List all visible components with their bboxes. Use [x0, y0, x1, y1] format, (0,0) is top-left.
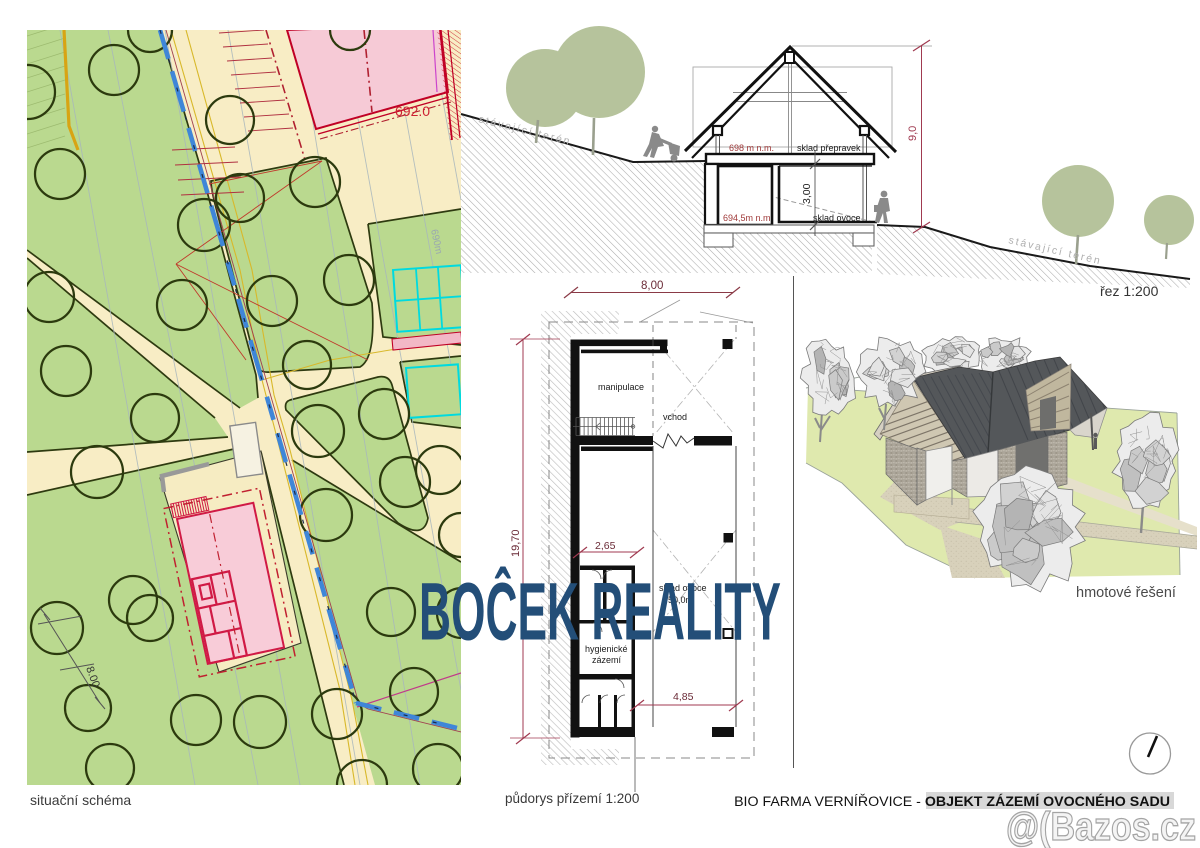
svg-text:BOĈEK REALITY: BOĈEK REALITY — [419, 566, 781, 657]
svg-text:692.0: 692.0 — [395, 103, 430, 119]
svg-text:3,00: 3,00 — [801, 183, 813, 204]
svg-text:řez 1:200: řez 1:200 — [1100, 283, 1159, 299]
svg-text:19,70: 19,70 — [510, 529, 522, 557]
svg-text:694,5m n.m: 694,5m n.m — [723, 213, 771, 223]
svg-text:8,00: 8,00 — [641, 280, 663, 292]
svg-text:situační schéma: situační schéma — [30, 792, 131, 808]
svg-text:4,85: 4,85 — [673, 691, 694, 703]
svg-text:sklad ovoce: sklad ovoce — [813, 213, 861, 223]
svg-text:698 m n.m.: 698 m n.m. — [729, 143, 774, 153]
svg-text:půdorys přízemí 1:200: půdorys přízemí 1:200 — [505, 791, 639, 806]
svg-text:2,65: 2,65 — [595, 540, 616, 552]
svg-text:vchod: vchod — [663, 412, 687, 422]
svg-text:9,0: 9,0 — [907, 126, 919, 141]
svg-text:@(Bazos.cz: @(Bazos.cz — [1006, 805, 1196, 848]
svg-text:sklad přepravek: sklad přepravek — [797, 143, 861, 153]
svg-text:manipulace: manipulace — [598, 382, 644, 392]
svg-text:hmotové řešení: hmotové řešení — [1076, 585, 1176, 601]
